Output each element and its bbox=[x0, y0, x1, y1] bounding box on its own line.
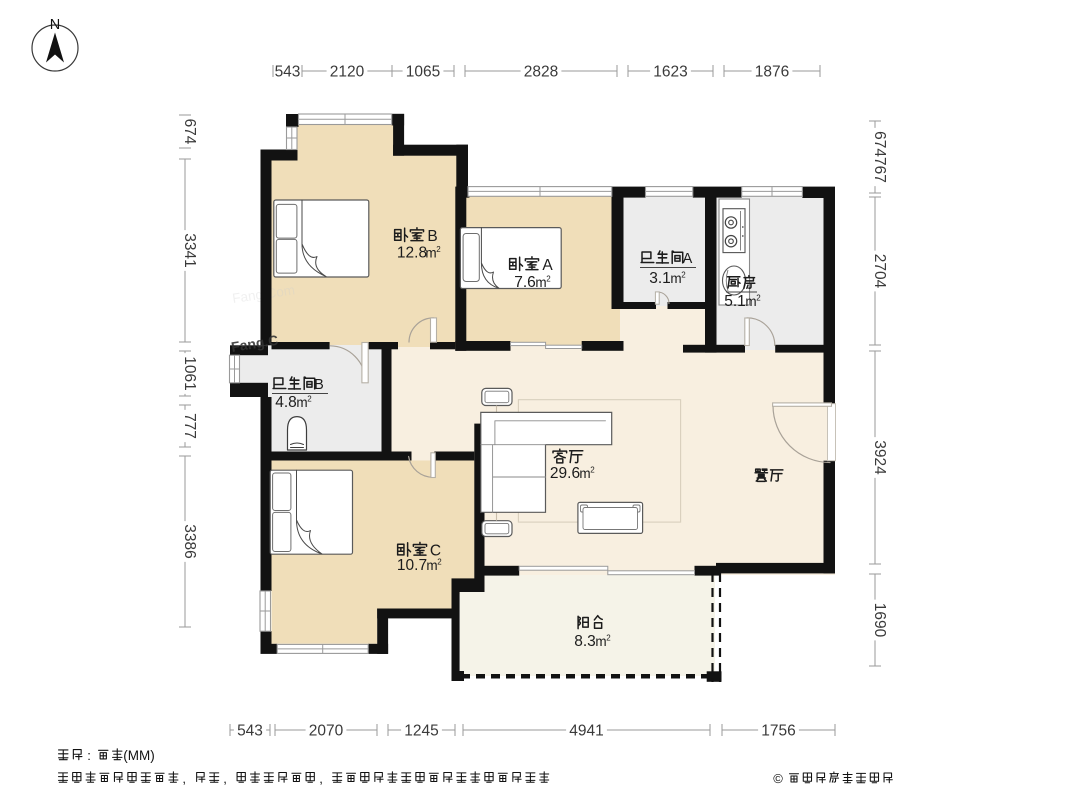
svg-text:3.1: 3.1 bbox=[649, 270, 671, 287]
svg-text:3386: 3386 bbox=[181, 524, 198, 558]
svg-text:2: 2 bbox=[756, 294, 761, 303]
svg-text:1690: 1690 bbox=[871, 603, 888, 638]
svg-text:674: 674 bbox=[181, 119, 198, 145]
svg-text:N: N bbox=[50, 17, 60, 33]
svg-text:777: 777 bbox=[181, 413, 198, 439]
svg-text::: : bbox=[87, 748, 91, 763]
svg-text:m: m bbox=[426, 558, 437, 573]
svg-text:B: B bbox=[427, 228, 437, 245]
svg-text:12.8: 12.8 bbox=[397, 245, 427, 262]
svg-text:1061: 1061 bbox=[181, 356, 198, 390]
svg-text:10.7: 10.7 bbox=[397, 557, 427, 574]
svg-text:A: A bbox=[542, 257, 553, 274]
svg-text:29.6: 29.6 bbox=[550, 465, 580, 482]
svg-text:2120: 2120 bbox=[330, 64, 365, 81]
svg-text:2828: 2828 bbox=[524, 64, 558, 81]
svg-text:2070: 2070 bbox=[309, 723, 344, 740]
svg-text:2: 2 bbox=[546, 275, 551, 284]
svg-text:8.3: 8.3 bbox=[574, 633, 596, 650]
svg-text:A: A bbox=[683, 251, 693, 267]
svg-text:B: B bbox=[314, 377, 324, 393]
svg-text:2: 2 bbox=[681, 271, 686, 280]
svg-text:2704: 2704 bbox=[871, 254, 888, 289]
svg-text:m: m bbox=[579, 466, 590, 481]
svg-text:(MM): (MM) bbox=[123, 748, 154, 763]
svg-text:2: 2 bbox=[307, 395, 312, 404]
svg-text:4941: 4941 bbox=[569, 723, 603, 740]
svg-text:m: m bbox=[425, 246, 436, 261]
svg-text:3924: 3924 bbox=[871, 440, 888, 475]
svg-text:,: , bbox=[319, 771, 323, 786]
svg-text:3341: 3341 bbox=[181, 233, 198, 267]
svg-text:4.8: 4.8 bbox=[275, 394, 297, 411]
svg-text:2: 2 bbox=[436, 245, 441, 254]
svg-text:,: , bbox=[223, 771, 227, 786]
svg-text:m: m bbox=[595, 634, 606, 649]
svg-text:m: m bbox=[745, 294, 756, 309]
svg-text:1756: 1756 bbox=[761, 723, 795, 740]
svg-text:m: m bbox=[535, 275, 546, 290]
svg-text:543: 543 bbox=[237, 723, 263, 740]
svg-text:7.6: 7.6 bbox=[514, 274, 536, 291]
svg-text:,: , bbox=[182, 771, 186, 786]
svg-text:1065: 1065 bbox=[406, 64, 440, 81]
svg-text:2: 2 bbox=[437, 558, 442, 567]
svg-text:m: m bbox=[670, 271, 681, 286]
svg-text:543: 543 bbox=[275, 64, 301, 81]
svg-text:m: m bbox=[296, 395, 307, 410]
svg-text:1623: 1623 bbox=[653, 64, 687, 81]
svg-text:2: 2 bbox=[590, 466, 595, 475]
svg-text:674767: 674767 bbox=[871, 131, 888, 183]
svg-text:2: 2 bbox=[606, 634, 611, 643]
svg-text:5.1: 5.1 bbox=[724, 293, 746, 310]
svg-text:©: © bbox=[773, 771, 783, 786]
svg-text:1876: 1876 bbox=[755, 64, 789, 81]
svg-text:1245: 1245 bbox=[404, 723, 438, 740]
